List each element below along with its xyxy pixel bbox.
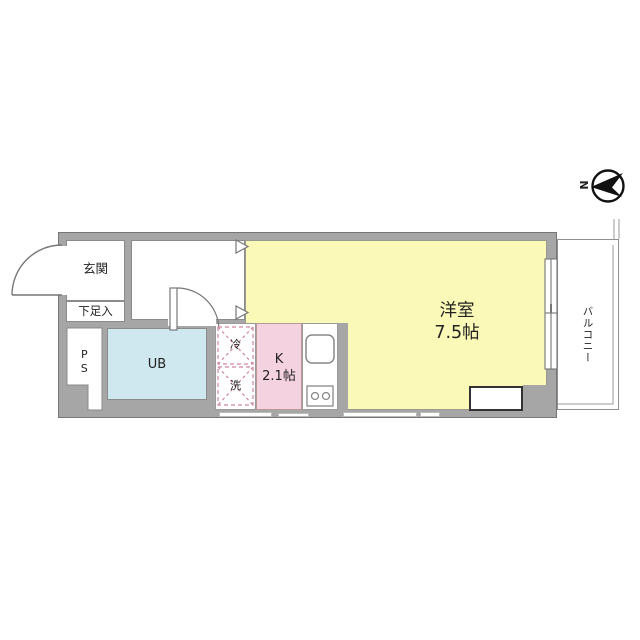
bottom-window-1 — [219, 412, 272, 417]
floorplan-canvas: 玄関 下足入 PS UB 冷 洗 K 2.1帖 洋室 7.5帖 バルコニー N — [0, 0, 640, 640]
north-compass-icon — [591, 171, 624, 202]
hallway-area — [131, 240, 245, 320]
bottom-window-3 — [343, 412, 417, 417]
kitchen-area — [256, 323, 302, 410]
north-label: N — [576, 177, 590, 193]
corner-wall-patch — [523, 385, 547, 410]
entrance-door — [12, 245, 62, 295]
kitchen-counter — [302, 323, 338, 410]
unit-bath-area — [107, 328, 207, 400]
shoe-box-area — [66, 301, 125, 322]
appliance-strip — [215, 323, 256, 410]
bottom-window-4 — [420, 412, 440, 417]
kitchen-room-wall — [338, 323, 348, 410]
entrance-door-gap — [57, 246, 67, 295]
bath-door-gap — [168, 319, 216, 326]
entrance-area — [66, 240, 125, 301]
storage-box — [469, 386, 523, 411]
balcony-area — [557, 239, 619, 410]
bottom-window-2 — [278, 413, 309, 417]
